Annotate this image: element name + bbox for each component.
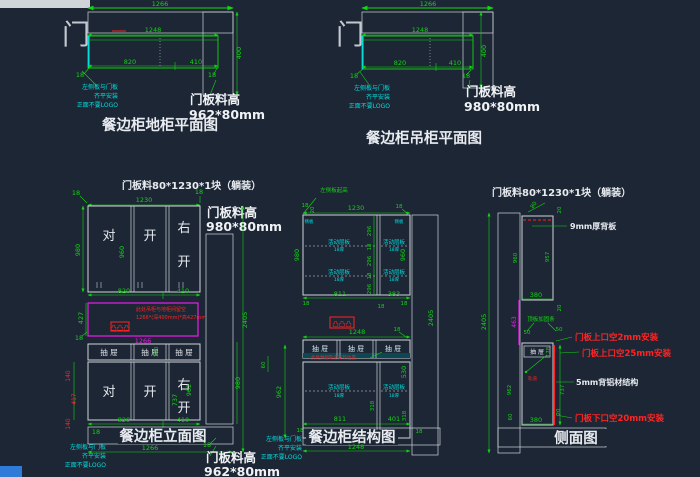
install-note-line2: 齐平安装 [94, 92, 118, 100]
gap-note-bottom20mm: 门板下口空20mm安装 [575, 413, 665, 424]
panel-tag: 侧板 [395, 218, 404, 225]
dim-18: 18 [367, 272, 373, 279]
side-view-drawing: 门板料80*1230*1块（躺装） 2405 463 962 60 80 20 … [480, 186, 672, 453]
drawer-label: 抽 屉 [100, 347, 118, 357]
door-swing-glyph: 门 [62, 18, 90, 51]
dim-980-right: 980 [234, 377, 242, 389]
shelf-thickness: 18厚 [334, 247, 345, 253]
side-panel-hatch [412, 215, 438, 455]
door-material-size: 980*80mm [464, 99, 540, 114]
command-chip [0, 466, 22, 477]
dim-1248: 1248 [349, 328, 366, 336]
drawing-title: 餐边柜立面图 [120, 427, 207, 445]
install-note-line1: 左侧板与门板 [82, 83, 118, 91]
dim-50: 50 [556, 327, 563, 333]
dim-1266: 1266 [152, 0, 169, 8]
drawer-label: 抽 屉 [348, 344, 364, 353]
dim-1230: 1230 [348, 204, 365, 212]
dim-811: 811 [334, 415, 346, 423]
top-rail-note: 顶板加固条 [527, 315, 555, 323]
drawer-label: 抽 屉 [312, 344, 328, 353]
dim-1248: 1248 [145, 26, 162, 34]
shelf-thickness: 18厚 [389, 393, 400, 399]
shelf-label: 活动层板 [328, 383, 351, 391]
toolbar-fragment [0, 0, 90, 8]
install-note-line2: 齐平安装 [82, 452, 106, 460]
door-panel-header: 门板料80*1230*1块（躺装） [492, 186, 631, 199]
drawing-title: 餐边柜吊柜平面图 [366, 129, 482, 147]
dim-20: 20 [310, 206, 316, 213]
dim-18: 18 [302, 203, 309, 209]
drawer-label: 抽 屉 [385, 344, 401, 353]
panel-tag: 侧板 [305, 218, 314, 225]
side-door-material-size: 980*80mm [206, 219, 282, 234]
dim-18: 18 [195, 188, 203, 196]
door-label: 对 [102, 229, 115, 244]
door-panel-header: 门板料80*1230*1块（躺装） [122, 179, 261, 192]
hinge-marks [97, 282, 183, 288]
door-material-label: 门板料高 [206, 450, 256, 465]
install-note-line1: 左侧板与门板 [354, 84, 390, 92]
dim-20: 20 [557, 206, 563, 213]
install-note-line2: 齐平安装 [366, 93, 390, 101]
structure-drawing: 左侧板起高 18 20 1230 18 侧板 侧板 活动层板 活动层板 活动层板… [261, 186, 440, 461]
dim-80: 80 [530, 200, 539, 210]
install-note-line1: 左侧板与门板 [70, 443, 106, 451]
dim-820: 820 [124, 58, 136, 66]
dim-401: 401 [388, 415, 400, 423]
install-note-line1: 左侧板与门板 [266, 435, 302, 443]
dim-820: 820 [118, 287, 130, 295]
dim-380: 380 [530, 291, 542, 299]
dim-960: 960 [513, 252, 519, 263]
door-material-size: 962*80mm [204, 464, 280, 477]
dim-178: 178 [546, 346, 552, 357]
gap-note-top25mm: 门板上口空25mm安装 [582, 348, 672, 359]
shelf-label: 活动层板 [383, 383, 406, 391]
dim-737: 737 [560, 384, 566, 395]
install-note-line3: 正面不要LOGO [65, 462, 107, 469]
dim-18: 18 [416, 429, 423, 435]
base-cabinet-plan: 门 1266 1248 820 410 18 18 400 左侧板与门板 齐平安… [62, 0, 265, 134]
lower-carcass-outline [303, 362, 410, 438]
dim-400: 400 [235, 47, 243, 59]
dim-410: 410 [449, 59, 461, 67]
door-material-label: 门板料高 [190, 92, 240, 107]
dim-530: 530 [400, 366, 408, 378]
dim-737: 737 [171, 394, 179, 406]
dim-463-magenta: 463 [511, 316, 518, 328]
gap-note-top2mm: 门板上口空2mm安装 [575, 332, 659, 343]
install-note-line3: 正面不要LOGO [77, 102, 119, 109]
dim-980: 980 [74, 244, 82, 256]
outlet-symbols: 凸凸凸 [110, 324, 130, 332]
dim-427: 427 [77, 312, 85, 324]
side-panel-hatch [206, 234, 233, 424]
dim-820: 820 [118, 416, 130, 424]
shelf-label: 活动层板 [328, 268, 351, 276]
dim-410: 410 [177, 287, 189, 295]
dim-18: 18 [75, 334, 83, 342]
niche-note-line1: 此处吊柜与地柜间留空 [136, 306, 186, 313]
back-panel-label: 9mm厚背板 [570, 221, 617, 231]
door-swing-glyph: 门 [336, 18, 364, 51]
elevation-drawing: 门板料80*1230*1块（躺装） 18 1230 18 对 开 右 开 980… [65, 179, 282, 477]
door-label: 开 [177, 401, 190, 416]
dim-60: 60 [508, 413, 514, 420]
dim-2405: 2405 [480, 314, 488, 331]
dim-296: 296 [367, 255, 373, 266]
dim-18-left: 18 [350, 72, 358, 80]
shelf-label: 活动层板 [383, 238, 406, 246]
dim-980: 980 [293, 249, 301, 261]
dim-18: 18 [92, 428, 100, 436]
drawer-label: 抽 屉 [175, 347, 193, 357]
dim-18-right: 18 [462, 72, 470, 80]
upper-cabinet-outline [88, 206, 200, 292]
drawing-title: 侧面图 [554, 429, 598, 447]
dim-960: 960 [118, 246, 126, 258]
drawing-title: 餐边柜地柜平面图 [102, 116, 218, 134]
dim-410: 410 [177, 416, 189, 424]
dim-180: 180 [154, 346, 160, 357]
dim-820: 820 [394, 59, 406, 67]
dim-811: 811 [334, 290, 346, 298]
door-label: 开 [177, 255, 190, 270]
door-label: 右 [177, 221, 190, 236]
dim-417-red: 417 [71, 393, 78, 405]
dim-962: 962 [507, 385, 513, 396]
door-material-label: 门板料高 [466, 84, 516, 99]
dim-380: 380 [530, 416, 542, 424]
rail-note: 此处预留轨道安装位置 [311, 354, 356, 361]
install-note-line3: 正面不要LOGO [349, 103, 391, 110]
dim-18: 18 [367, 243, 373, 250]
dim-18: 18 [72, 189, 80, 197]
dim-18: 18 [401, 301, 408, 307]
dim-1266: 1266 [142, 444, 159, 452]
rail-tiny-note: 轨道 [528, 375, 537, 382]
dim-1248: 1248 [348, 443, 365, 451]
dim-2405: 2405 [427, 310, 435, 327]
dim-296: 296 [367, 225, 373, 236]
dim-1266: 1266 [420, 0, 437, 8]
door-label: 开 [143, 385, 156, 400]
install-note-line3: 正面不要LOGO [261, 454, 303, 461]
dim-18: 18 [303, 301, 310, 307]
dim-383: 383 [388, 290, 400, 298]
dim-18: 18 [378, 304, 385, 310]
dim-18: 18 [394, 327, 401, 333]
outlet-symbols: 凸凸凸 [332, 320, 352, 328]
cad-drawing-svg: 门 1266 1248 820 410 18 18 400 左侧板与门板 齐平安… [0, 0, 700, 477]
dim-957: 957 [545, 251, 551, 262]
corner-note: 左侧板起高 [320, 186, 348, 194]
shelf-thickness: 18厚 [389, 247, 400, 253]
cad-viewport: 门 1266 1248 820 410 18 18 400 左侧板与门板 齐平安… [0, 0, 700, 477]
door-label: 对 [102, 385, 115, 400]
door-label: 开 [143, 229, 156, 244]
niche-note-line2: 1266*(深400mm)*高427mm [136, 314, 206, 321]
side-door-material-label: 门板料高 [207, 205, 257, 220]
dim-962: 962 [185, 384, 193, 396]
dim-18: 18 [203, 441, 211, 449]
dim-18-right: 18 [208, 71, 216, 79]
upper-carcass-outline [303, 215, 410, 295]
dim-296: 296 [367, 283, 373, 294]
dim-20: 20 [557, 304, 563, 311]
install-note-line2: 齐平安装 [278, 444, 302, 452]
dim-410: 410 [190, 58, 202, 66]
dim-140-red: 140 [65, 418, 72, 430]
shelf-thickness: 18厚 [389, 277, 400, 283]
dim-962: 962 [275, 386, 283, 398]
shelf-thickness: 18厚 [334, 393, 345, 399]
wall-cabinet-plan: 门 1266 1248 820 410 18 18 400 左侧板与门板 齐平安… [336, 0, 540, 147]
shelf-thickness: 18厚 [334, 277, 345, 283]
dim-60: 60 [261, 361, 267, 368]
dim-1248: 1248 [412, 26, 429, 34]
alu-structure-label: 5mm背铝材结构 [576, 377, 638, 387]
dim-18: 18 [396, 204, 403, 210]
shelf-label: 活动层板 [383, 268, 406, 276]
dim-20: 20 [556, 408, 562, 415]
dim-400: 400 [480, 45, 488, 57]
shelf-label: 活动层板 [328, 238, 351, 246]
drawer-label: 抽 屉 [530, 348, 544, 356]
dim-318: 318 [370, 400, 376, 411]
dim-318: 318 [402, 410, 408, 421]
dim-140-red: 140 [65, 370, 72, 382]
dim-50: 50 [524, 330, 531, 336]
dim-960: 960 [399, 249, 407, 261]
dim-2405: 2405 [241, 312, 249, 329]
dim-1230: 1230 [136, 196, 153, 204]
